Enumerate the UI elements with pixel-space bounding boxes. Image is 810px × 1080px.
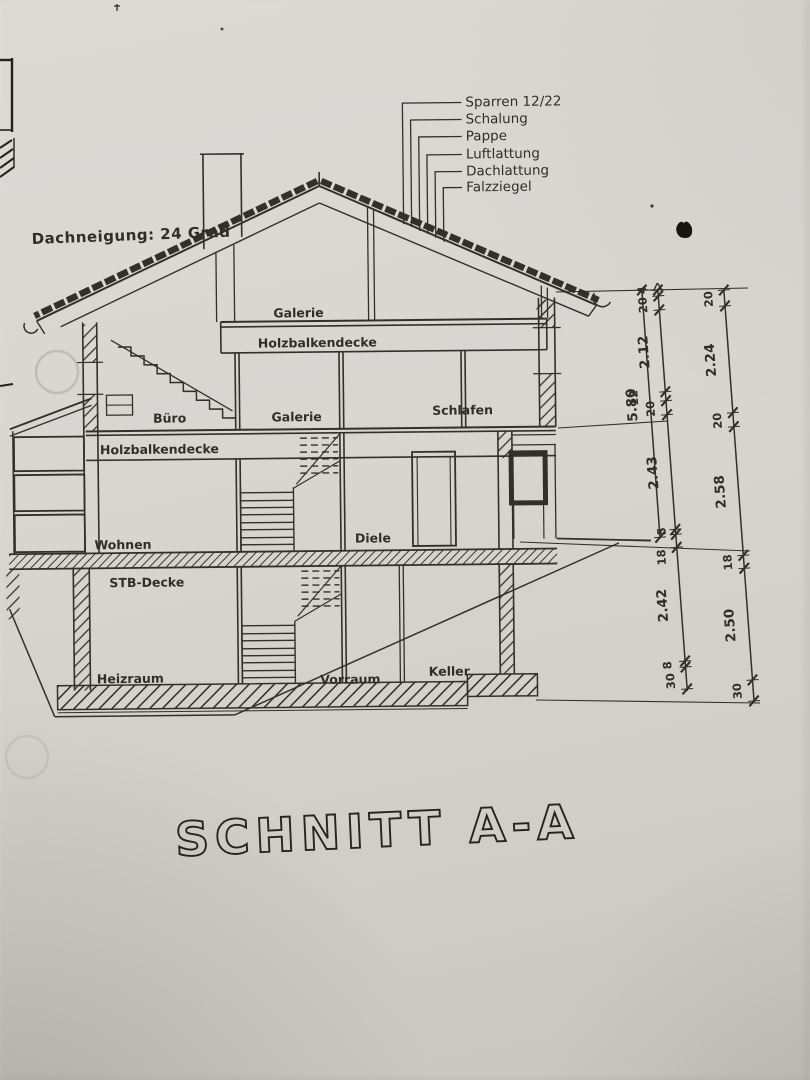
punch-hole <box>36 351 78 393</box>
dim-inner-4: 20 <box>643 400 658 417</box>
drawing-title: SCHNITT A-A <box>174 795 580 868</box>
dim-inner-3: 12 <box>626 390 641 407</box>
label-concrete-slab: STB-Decke <box>109 574 184 590</box>
dim-outer-0: 20 <box>701 291 716 308</box>
edge-hatch-fragment <box>0 138 14 177</box>
dim-outer-2: 20 <box>710 412 725 429</box>
label-bedroom: Schlafen <box>432 402 493 418</box>
dim-inner-7: 18 <box>654 549 669 566</box>
label-basement-hall: Vorraum <box>320 671 380 687</box>
dimension-chain-outer: 20 2.24 20 2.58 18 2.50 30 <box>698 285 761 708</box>
dim-outer-3: 2.58 <box>711 475 729 509</box>
roof-pitch-note: Dachneigung: 24 Grad <box>31 223 230 248</box>
callout-schalung: Schalung <box>465 111 527 128</box>
dim-inner-2: 2.12 <box>635 335 653 369</box>
dim-inner-9: 8 <box>660 661 675 670</box>
dim-inner-10: 30 <box>663 673 678 690</box>
label-boiler-room: Heizraum <box>97 671 164 687</box>
callout-falzziegel: Falzziegel <box>466 179 532 196</box>
stair-basement-dashed <box>301 571 339 606</box>
roof-callout-labels: Sparren 12/22 Schalung Pappe Luftlattung… <box>465 93 562 195</box>
dim-inner-6: 5 <box>654 527 669 536</box>
label-attic-ceiling: Holzbalkendecke <box>258 334 377 350</box>
house-section: Sparren 12/22 Schalung Pappe Luftlattung… <box>1 93 652 718</box>
callout-sparren: Sparren 12/22 <box>465 93 561 110</box>
roof-callout-leaders <box>402 103 462 243</box>
ink-blot <box>676 222 692 239</box>
label-upper-floor-deck: Holzbalkendecke <box>100 441 219 457</box>
hall-door <box>412 452 456 546</box>
punch-hole <box>6 736 48 778</box>
label-attic-gallery: Galerie <box>273 305 324 321</box>
dimension-overall: 5.80 <box>616 285 667 545</box>
dim-outer-1: 2.24 <box>702 343 720 377</box>
scanned-plan-page: Sparren 12/22 Schalung Pappe Luftlattung… <box>0 0 810 1080</box>
label-upper-gallery: Galerie <box>271 409 322 425</box>
dimension-chain-inner: 4 20 2.12 12 20 2.43 5 18 2.42 8 30 <box>618 283 693 697</box>
callout-dachlattung: Dachlattung <box>466 163 549 180</box>
callout-pappe: Pappe <box>466 128 507 144</box>
dim-outer-4: 18 <box>720 554 735 571</box>
annex-window-front <box>9 398 93 554</box>
label-cellar: Keller <box>429 663 471 678</box>
dim-outer-6: 30 <box>730 683 745 700</box>
dim-inner-8: 2.42 <box>654 588 672 622</box>
stair-basement <box>241 566 342 684</box>
dim-inner-0: 4 <box>635 286 650 295</box>
gutter-left <box>24 323 38 333</box>
dim-inner-1: 20 <box>635 297 650 314</box>
hall-door-inner <box>417 457 451 546</box>
label-hallway: Diele <box>355 530 391 545</box>
section-drawing: Sparren 12/22 Schalung Pappe Luftlattung… <box>0 0 810 1080</box>
label-office: Büro <box>153 410 187 425</box>
label-living-room: Wohnen <box>94 537 151 553</box>
callout-luftlattung: Luftlattung <box>466 146 540 163</box>
dim-outer-5: 2.50 <box>721 608 739 642</box>
roof-posts <box>367 206 547 321</box>
dim-inner-5: 2.43 <box>644 456 662 490</box>
ground-floor-window <box>511 453 546 503</box>
